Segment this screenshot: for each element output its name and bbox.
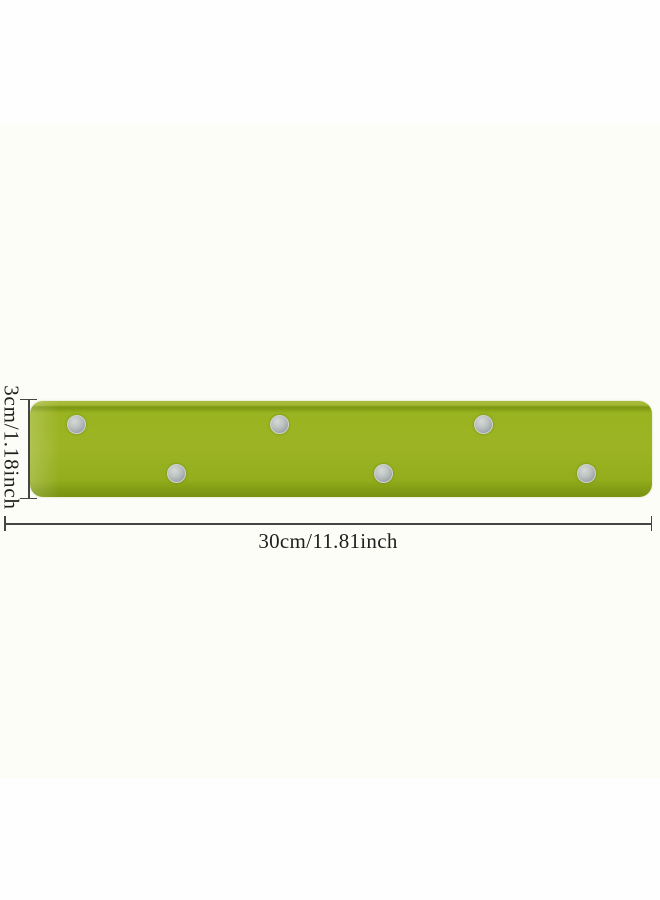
height-dimension-line [28,399,30,498]
width-dimension-line [4,523,652,525]
metal-dot [270,415,289,434]
height-dimension-label: 3cm/1.18inch [1,378,22,518]
width-dimension-label: 30cm/11.81inch [4,529,652,553]
metal-dot [167,464,186,483]
metal-dot [474,415,493,434]
metal-dot [67,415,86,434]
product-dimension-image: 3cm/1.18inch 30cm/11.81inch [0,0,660,900]
metal-dot [374,464,393,483]
magnetic-strip [30,401,652,497]
metal-dot [577,464,596,483]
